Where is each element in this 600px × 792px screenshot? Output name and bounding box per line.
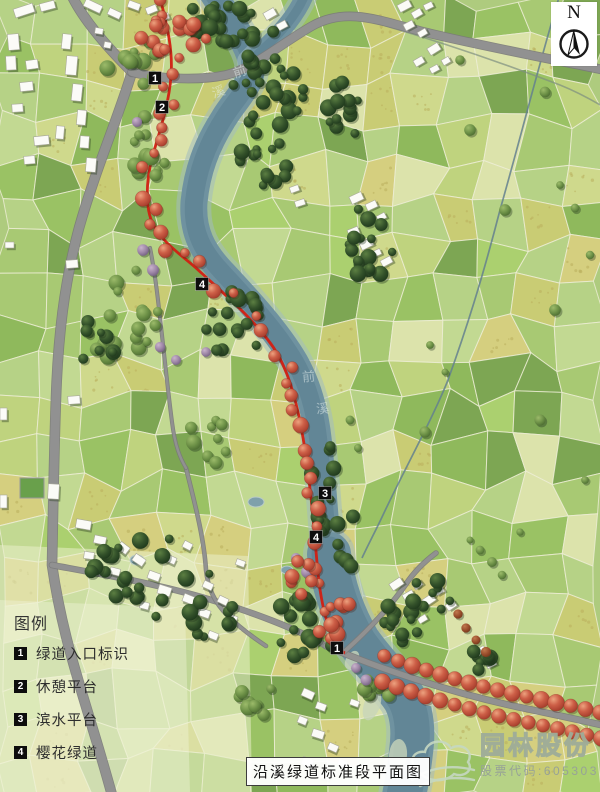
legend-key-1: 1 [14, 647, 27, 660]
legend-label-1: 绿道入口标识 [36, 643, 129, 664]
legend-item-entrance: 1 绿道入口标识 [14, 643, 244, 664]
legend-label-4: 樱花绿道 [36, 742, 98, 763]
legend: 图例 1 绿道入口标识 2 休憩平台 3 滨水平台 4 樱花绿道 [14, 610, 244, 775]
watermark-text: 园林股份 股票代码:605303 [480, 732, 599, 779]
map-marker-2: 2 [156, 101, 169, 115]
legend-item-rest-platform: 2 休憩平台 [14, 676, 244, 697]
river-name-char: 前 [301, 368, 315, 384]
map-marker-4: 4 [196, 278, 209, 292]
map-marker-3: 3 [319, 487, 332, 501]
map-marker-1: 1 [331, 642, 344, 656]
legend-item-cherry-greenway: 4 樱花绿道 [14, 742, 244, 763]
greenway-site-plan: 前溪前溪124341 图例 1 绿道入口标识 2 休憩平台 3 滨水平台 4 樱… [0, 0, 600, 792]
legend-key-2: 2 [14, 680, 27, 693]
watermark-stock-code: 股票代码:605303 [480, 762, 599, 779]
legend-item-waterfront-platform: 3 滨水平台 [14, 709, 244, 730]
svg-text:1: 1 [334, 643, 340, 655]
river-name-char: 溪 [315, 400, 329, 416]
lawn-parcel [20, 478, 44, 498]
svg-text:1: 1 [152, 73, 158, 85]
legend-label-3: 滨水平台 [36, 709, 98, 730]
watermark: 园林股份 股票代码:605303 [404, 732, 599, 790]
svg-text:3: 3 [322, 488, 328, 500]
plan-title: 沿溪绿道标准段平面图 [253, 761, 423, 782]
compass-icon [556, 24, 592, 62]
legend-title: 图例 [14, 610, 244, 634]
plan-title-box: 沿溪绿道标准段平面图 [246, 757, 430, 786]
map-marker-4: 4 [310, 531, 323, 545]
svg-text:4: 4 [199, 279, 206, 291]
svg-text:4: 4 [313, 532, 320, 544]
legend-key-4: 4 [14, 746, 27, 759]
north-arrow: N [551, 2, 597, 66]
north-label: N [567, 2, 581, 24]
watermark-brand: 园林股份 [480, 732, 599, 760]
map-marker-1: 1 [149, 72, 162, 86]
legend-key-3: 3 [14, 713, 27, 726]
svg-text:2: 2 [159, 102, 165, 114]
legend-label-2: 休憩平台 [36, 676, 98, 697]
